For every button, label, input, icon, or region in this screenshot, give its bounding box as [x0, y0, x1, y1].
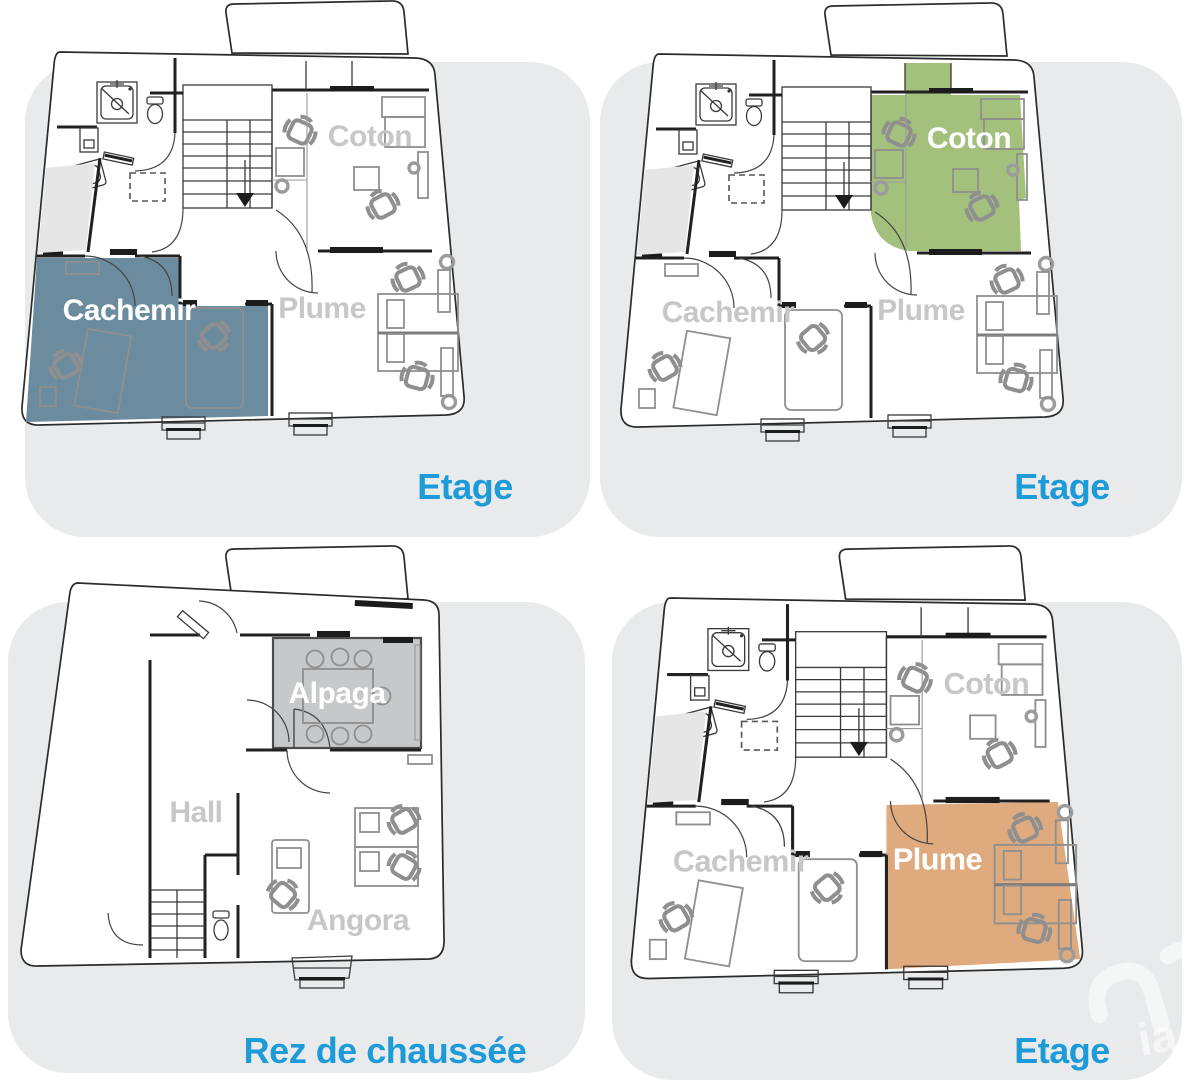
- room-label-plume: Plume: [877, 294, 965, 327]
- floorplan-brochure: Cachemir Coton Plume Etage Cachemir Coto…: [0, 0, 1194, 1080]
- floor-plan-etage-1: Cachemir Coton Plume: [0, 0, 597, 540]
- room-label-coton: Coton: [328, 120, 412, 153]
- room-label-plume: Plume: [278, 292, 366, 325]
- floor-plan-ground: Alpaga Hall Angora: [0, 545, 597, 1080]
- room-label-cachemir: Cachemir: [673, 844, 809, 878]
- floor-caption: Etage: [325, 466, 605, 508]
- panel-etage-coton: Cachemir Coton Plume Etage: [597, 0, 1194, 540]
- room-label-coton: Coton: [927, 122, 1011, 155]
- room-label-plume: Plume: [893, 842, 982, 876]
- room-label-coton: Coton: [944, 667, 1030, 701]
- panel-etage-plume: Cachemir Coton Plume ia Etage: [597, 545, 1194, 1080]
- panel-etage-cachemir: Cachemir Coton Plume Etage: [0, 0, 597, 540]
- floor-plan-etage-2: Cachemir Coton Plume: [597, 0, 1194, 540]
- floor-plan-etage-3: Cachemir Coton Plume: [597, 545, 1194, 1080]
- floor-caption: Rez de chaussée: [235, 1030, 535, 1072]
- room-label-cachemir: Cachemir: [63, 294, 197, 327]
- floor-caption: Etage: [922, 466, 1194, 508]
- room-label-cachemir: Cachemir: [662, 296, 796, 329]
- room-label-hall: Hall: [169, 796, 222, 829]
- floor-caption: Etage: [922, 1030, 1194, 1072]
- panel-rdc-alpaga: Alpaga Hall Angora Rez de chaussée: [0, 545, 597, 1080]
- room-label-alpaga: Alpaga: [288, 677, 386, 710]
- room-label-angora: Angora: [307, 904, 410, 937]
